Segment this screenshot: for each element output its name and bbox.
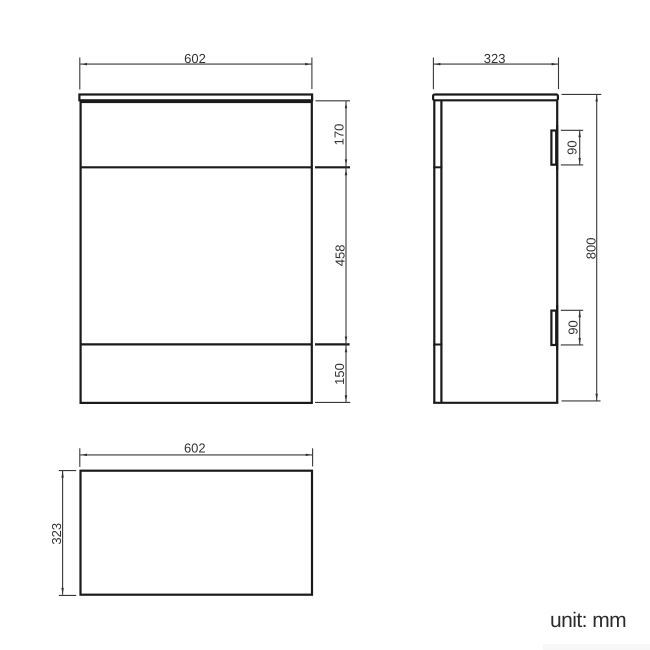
svg-text:150: 150	[332, 363, 347, 385]
svg-text:602: 602	[184, 51, 206, 66]
svg-text:602: 602	[184, 440, 206, 455]
svg-text:90: 90	[565, 140, 580, 154]
svg-text:800: 800	[584, 238, 599, 260]
svg-text:90: 90	[565, 320, 580, 334]
svg-text:unit: mm: unit: mm	[550, 609, 626, 632]
svg-text:170: 170	[331, 124, 346, 146]
svg-text:323: 323	[49, 523, 64, 545]
svg-text:458: 458	[333, 245, 348, 267]
svg-text:323: 323	[484, 51, 506, 66]
